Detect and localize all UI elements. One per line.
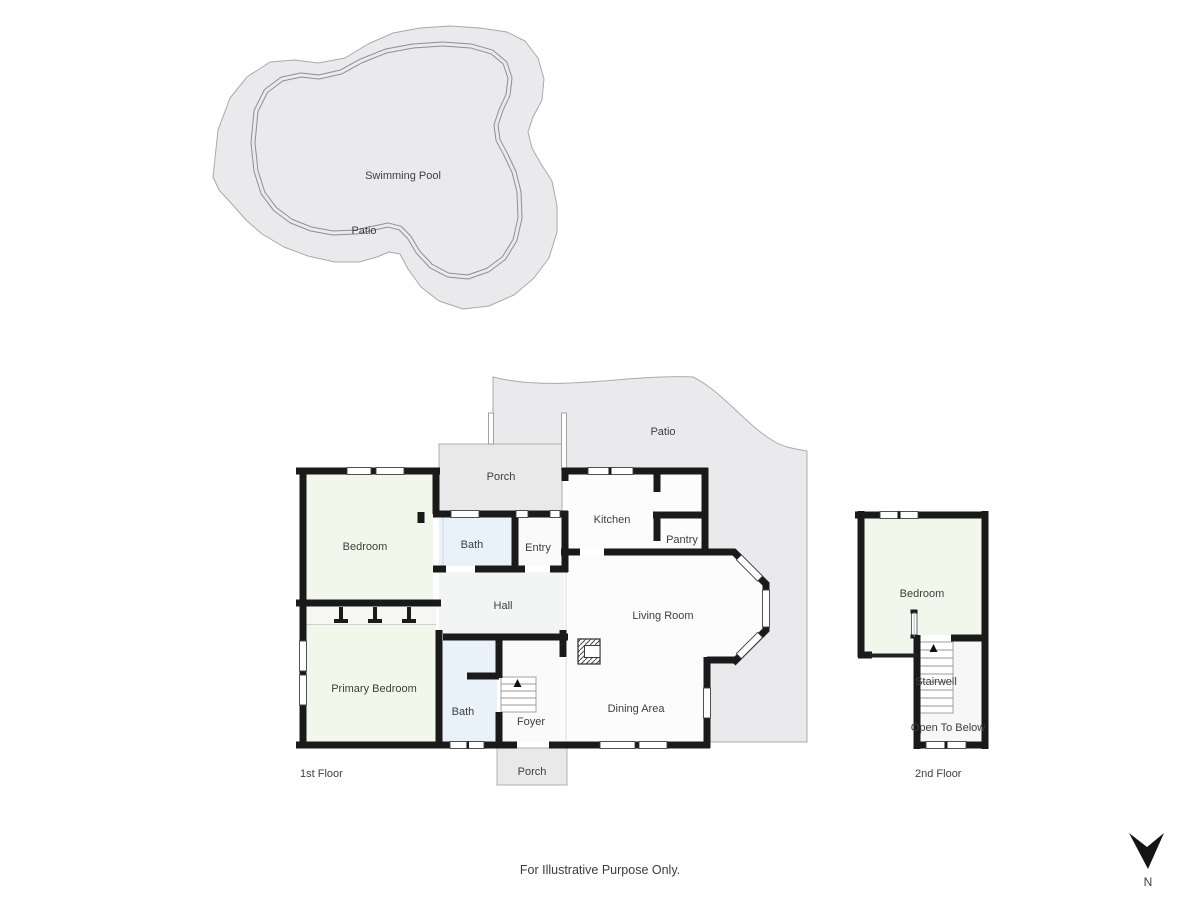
floor-plan-page: Swimming Pool Patio Patio: [0, 0, 1200, 900]
bath-bottom-label: Bath: [452, 706, 475, 718]
second-floor-caption: 2nd Floor: [915, 768, 962, 780]
porch-railing-left: [489, 413, 494, 444]
north-compass: N: [1129, 833, 1164, 889]
first-floor-plan: Patio: [296, 377, 807, 785]
bath-top-label: Bath: [461, 539, 484, 551]
floor-plan-canvas: Swimming Pool Patio Patio: [0, 0, 1200, 900]
dining-area-label: Dining Area: [608, 703, 666, 715]
entry-label: Entry: [525, 542, 551, 554]
north-arrow-icon: [1129, 833, 1164, 869]
north-label: N: [1144, 875, 1153, 889]
porch-bottom-label: Porch: [518, 766, 547, 778]
first-floor-caption: 1st Floor: [300, 768, 343, 780]
room-bedroom2-fill: [864, 518, 982, 635]
pool-area: Swimming Pool Patio: [213, 26, 557, 309]
living-room-label: Living Room: [632, 610, 693, 622]
foyer-label: Foyer: [517, 716, 545, 728]
pool-patio-label: Patio: [351, 225, 376, 237]
stairhead-railing: [911, 610, 918, 639]
stairwell-label: Stairwell: [915, 676, 957, 688]
disclaimer-text: For Illustrative Purpose Only.: [520, 863, 680, 877]
kitchen-label: Kitchen: [594, 514, 631, 526]
pantry-label: Pantry: [666, 534, 698, 546]
foyer-stairs: [501, 677, 536, 712]
swimming-pool-label: Swimming Pool: [365, 170, 441, 182]
porch-top-label: Porch: [487, 471, 516, 483]
hall-label: Hall: [494, 600, 513, 612]
open-to-below-label: Open To Below: [911, 722, 985, 734]
room-bedroom-fill: [306, 474, 433, 600]
patio-label: Patio: [650, 426, 675, 438]
porch-railing-right: [562, 413, 567, 470]
room-bath-bottom-fill: [442, 640, 497, 742]
bedroom-label: Bedroom: [343, 541, 388, 553]
primary-bedroom-label: Primary Bedroom: [331, 683, 417, 695]
second-floor-plan: Bedroom Stairwell Open To Below 2nd Floo…: [855, 511, 988, 780]
fireplace: [578, 639, 600, 664]
room-primary-bedroom-fill: [306, 606, 436, 742]
bedroom2-label: Bedroom: [900, 588, 945, 600]
